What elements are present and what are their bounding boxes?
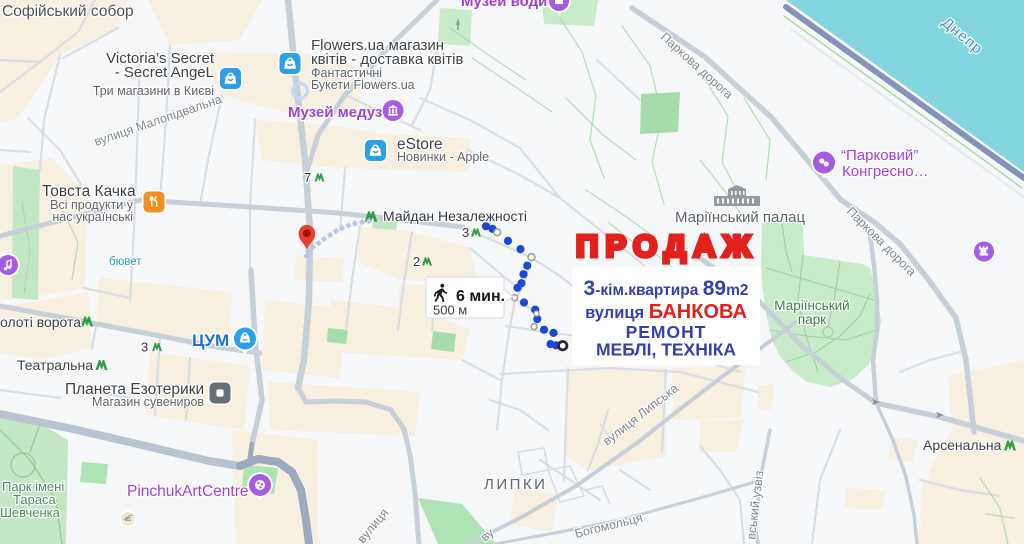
svg-text:3: 3: [462, 225, 469, 240]
svg-text:Маріїнський палац: Маріїнський палац: [675, 209, 805, 226]
svg-text:500 м: 500 м: [433, 303, 467, 318]
svg-text:нас українські: нас українські: [52, 210, 133, 224]
svg-text:ПРОДАЖ: ПРОДАЖ: [576, 229, 758, 264]
svg-text:2: 2: [413, 254, 420, 269]
svg-text:Новинки - Apple: Новинки - Apple: [397, 150, 489, 164]
svg-text:Музей медуз: Музей медуз: [288, 104, 382, 121]
svg-text:Конгресно…: Конгресно…: [842, 163, 929, 180]
svg-text:Букети Flowers.ua: Букети Flowers.ua: [311, 78, 415, 92]
svg-text:олоті ворота: олоті ворота: [0, 314, 81, 330]
svg-text:Магазин сувениров: Магазин сувениров: [92, 395, 204, 409]
svg-text:ЛИПКИ: ЛИПКИ: [484, 476, 547, 493]
svg-text:вулиця БАНКОВА: вулиця БАНКОВА: [585, 301, 747, 323]
svg-text:3: 3: [141, 340, 148, 355]
svg-text:ЦУМ: ЦУМ: [192, 331, 229, 350]
svg-text:Софійський собор: Софійський собор: [2, 3, 134, 20]
svg-text:Майдан Незалежності: Майдан Незалежності: [383, 208, 527, 224]
svg-text:бювет: бювет: [109, 256, 142, 268]
svg-text:7: 7: [304, 170, 311, 185]
svg-text:PinchukArtCentre: PinchukArtCentre: [127, 483, 248, 500]
svg-text:“Парковий”: “Парковий”: [841, 147, 918, 164]
svg-text:Шевченка: Шевченка: [0, 505, 61, 520]
svg-text:Три магазини в Києві: Три магазини в Києві: [93, 84, 214, 98]
svg-text:- Secret AngeL: - Secret AngeL: [115, 64, 214, 81]
svg-text:Маріїнський: Маріїнський: [774, 298, 849, 313]
svg-text:Театральна: Театральна: [17, 357, 93, 373]
svg-text:Музей води: Музей води: [461, 0, 547, 10]
svg-text:Арсенальна: Арсенальна: [923, 437, 1002, 453]
svg-text:МЕБЛІ, ТЕХНІКА: МЕБЛІ, ТЕХНІКА: [596, 340, 736, 360]
svg-text:парк: парк: [798, 312, 826, 327]
